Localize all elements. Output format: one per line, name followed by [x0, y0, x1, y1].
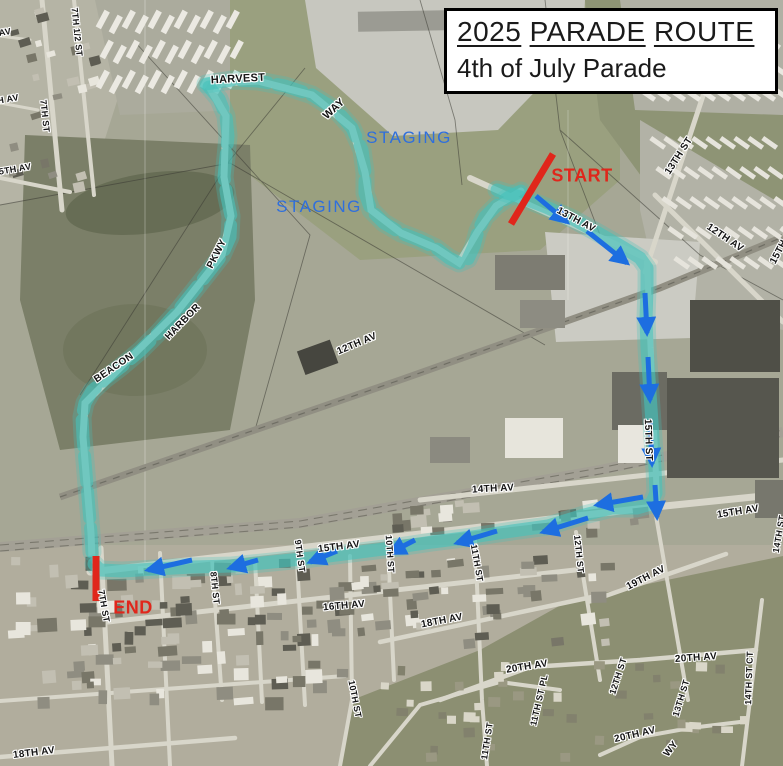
building — [197, 665, 212, 675]
building — [73, 661, 85, 671]
building — [421, 526, 433, 533]
building — [410, 506, 424, 515]
building — [406, 700, 413, 707]
building — [80, 603, 97, 613]
building — [176, 603, 193, 616]
building — [462, 502, 480, 513]
building — [591, 591, 607, 603]
direction-arrow — [648, 357, 650, 400]
building — [392, 513, 402, 525]
building — [721, 726, 733, 733]
building — [172, 576, 190, 589]
building — [560, 753, 570, 762]
building — [601, 563, 615, 571]
title-word-route: ROUTE — [654, 16, 755, 47]
building — [96, 654, 114, 664]
building — [16, 622, 31, 635]
building — [235, 583, 243, 595]
building — [292, 636, 301, 643]
building — [553, 693, 561, 702]
building — [329, 587, 344, 600]
building — [486, 588, 504, 595]
map-title-box: 2025 PARADE ROUTE 4th of July Parade — [444, 8, 778, 94]
building — [601, 638, 610, 646]
building — [236, 655, 249, 666]
building — [49, 564, 58, 577]
building — [228, 628, 245, 636]
building — [429, 586, 439, 594]
building — [72, 681, 82, 690]
direction-arrow — [645, 293, 647, 333]
building — [521, 561, 534, 569]
building — [381, 582, 399, 590]
building — [255, 615, 266, 625]
building — [161, 637, 176, 645]
direction-arrow — [655, 485, 657, 517]
building — [494, 672, 504, 682]
building — [113, 687, 130, 699]
building — [148, 662, 162, 668]
building — [16, 592, 30, 604]
street-label: 14TH AV — [472, 482, 515, 495]
building — [551, 637, 564, 647]
building — [541, 574, 557, 582]
building — [696, 662, 708, 671]
building — [594, 661, 605, 669]
building — [107, 579, 127, 591]
building — [396, 708, 408, 716]
building — [158, 645, 178, 656]
building — [586, 527, 598, 537]
building — [337, 669, 348, 678]
building — [125, 632, 134, 645]
building — [488, 697, 500, 707]
building — [163, 618, 182, 629]
building — [312, 634, 319, 646]
building — [293, 676, 306, 687]
building — [566, 714, 576, 723]
building — [112, 643, 121, 652]
building — [217, 614, 236, 625]
building — [689, 722, 701, 730]
building — [513, 691, 524, 700]
building — [373, 585, 381, 592]
building — [438, 712, 446, 719]
building — [305, 669, 322, 684]
building — [180, 596, 189, 603]
building — [216, 687, 233, 700]
building — [113, 658, 122, 665]
building — [281, 631, 289, 640]
building — [283, 645, 296, 651]
building — [595, 736, 604, 745]
building — [125, 646, 137, 653]
building — [217, 651, 226, 664]
building — [302, 607, 313, 615]
building — [360, 576, 369, 587]
building — [250, 586, 265, 594]
building — [70, 619, 86, 630]
building — [580, 612, 596, 625]
building — [463, 727, 475, 737]
building — [410, 610, 418, 618]
building — [277, 593, 287, 605]
building — [653, 675, 661, 683]
building — [588, 573, 596, 581]
building — [234, 668, 249, 681]
building — [152, 600, 160, 610]
map-subtitle: 4th of July Parade — [457, 53, 765, 84]
street-label: 14TH ST CT — [743, 651, 755, 705]
building — [182, 656, 201, 664]
building — [716, 665, 725, 674]
staging-label: STAGING — [276, 197, 362, 217]
building — [11, 557, 20, 565]
building — [308, 661, 320, 669]
building — [256, 631, 264, 645]
building — [455, 682, 464, 691]
building — [543, 709, 554, 716]
building — [599, 618, 610, 627]
building — [392, 524, 404, 533]
building — [265, 697, 283, 710]
building — [307, 619, 317, 627]
building — [474, 703, 482, 711]
building — [276, 676, 287, 683]
building — [410, 515, 427, 528]
building — [150, 694, 160, 706]
building — [87, 681, 94, 688]
building — [463, 638, 475, 649]
street-label: 15TH ST — [642, 419, 654, 461]
map-title: 2025 PARADE ROUTE — [457, 16, 765, 48]
building — [145, 619, 162, 627]
building — [398, 666, 406, 676]
building — [381, 682, 389, 689]
building — [463, 712, 475, 722]
building — [160, 660, 180, 671]
title-year: 2025 — [457, 16, 521, 47]
building — [98, 690, 107, 704]
building — [486, 604, 499, 614]
building — [159, 602, 168, 609]
building — [635, 663, 644, 670]
building — [42, 670, 56, 684]
building — [380, 574, 387, 580]
building — [361, 565, 376, 572]
building — [431, 570, 441, 578]
building — [327, 619, 341, 633]
building — [405, 570, 419, 578]
building — [248, 617, 255, 625]
building — [530, 590, 542, 601]
building — [81, 645, 99, 656]
building — [37, 618, 57, 633]
start-label: START — [551, 166, 612, 187]
end-label: END — [113, 598, 153, 619]
building — [447, 716, 456, 724]
parade-route-map: 7TH 1/2 ST7TH STAVH AV5TH AVHARVESTWAY13… — [0, 0, 783, 766]
title-word-parade: PARADE — [530, 16, 646, 47]
building — [644, 713, 654, 720]
building — [677, 720, 685, 729]
building — [37, 697, 49, 709]
aerial-map-image — [0, 0, 783, 766]
building — [740, 716, 748, 724]
building — [421, 681, 432, 691]
building — [475, 632, 489, 640]
building — [135, 626, 146, 635]
building — [267, 613, 282, 620]
building — [533, 555, 548, 565]
building — [65, 575, 78, 589]
building — [440, 504, 453, 514]
building — [441, 587, 448, 594]
building — [426, 752, 437, 762]
building — [472, 594, 486, 602]
building — [357, 627, 365, 636]
building — [250, 596, 264, 608]
staging-label: STAGING — [366, 128, 452, 148]
building — [375, 620, 391, 630]
building — [202, 641, 212, 653]
